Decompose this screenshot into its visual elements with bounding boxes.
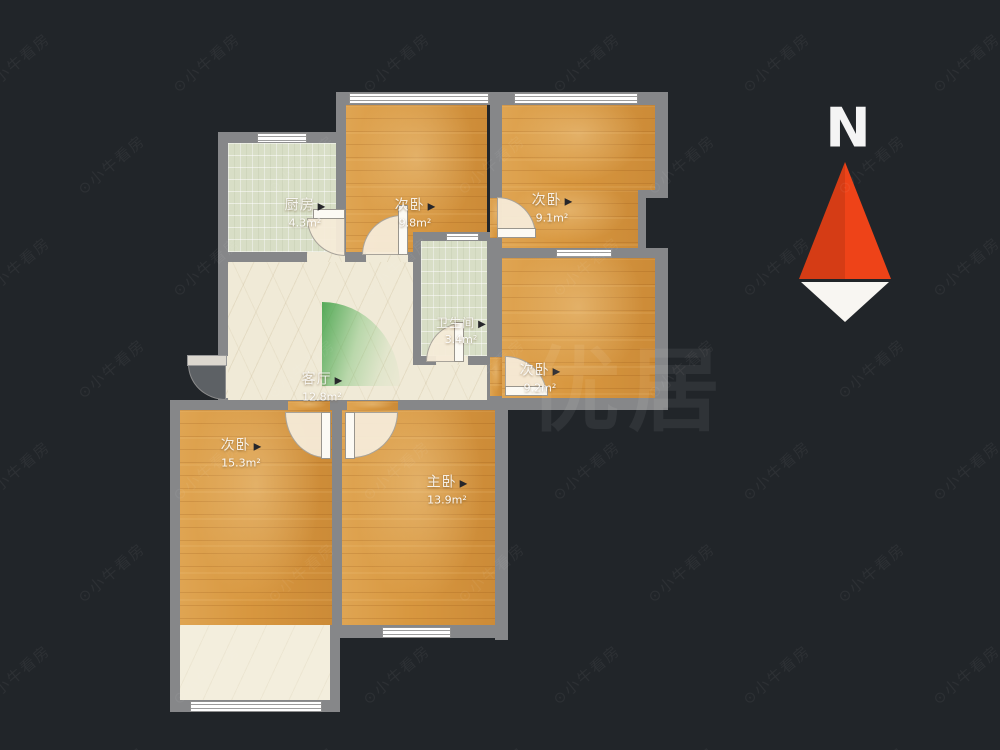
label-arrow-icon: ▶ <box>254 442 262 453</box>
watermark-tile: ⊙小牛看房 <box>548 28 625 97</box>
label-arrow-icon: ▶ <box>335 376 343 387</box>
watermark-tile: ⊙小牛看房 <box>453 742 530 750</box>
window <box>382 627 451 638</box>
watermark-tile: ⊙小牛看房 <box>738 640 815 709</box>
wall-notch <box>646 198 668 248</box>
room-label-kitchen: 厨房▶ 4.3m² <box>285 195 326 230</box>
room-label-bedroom-east: 次卧▶ 9.2m² <box>520 360 561 395</box>
room-area: 4.3m² <box>285 217 326 230</box>
wall <box>495 400 508 640</box>
watermark-tile: ⊙小牛看房 <box>643 742 720 750</box>
watermark-tile: ⊙小牛看房 <box>358 28 435 97</box>
entrance-door-arc <box>188 364 226 400</box>
wall <box>218 132 228 262</box>
watermark-tile: ⊙小牛看房 <box>833 334 910 403</box>
watermark-tile: ⊙小牛看房 <box>73 334 150 403</box>
compass-arrow-icon <box>780 150 920 340</box>
room-area: 9.1m² <box>532 212 573 225</box>
room-label-master-bedroom: 主卧▶ 13.9m² <box>427 472 468 507</box>
wall <box>638 198 646 248</box>
door-opening <box>490 357 502 396</box>
label-arrow-icon: ▶ <box>478 319 486 330</box>
watermark-tile: ⊙小牛看房 <box>833 538 910 607</box>
wall <box>655 92 668 198</box>
watermark-tile: ⊙小牛看房 <box>73 538 150 607</box>
watermark-tile: ⊙小牛看房 <box>0 436 55 505</box>
label-arrow-icon: ▶ <box>553 367 561 378</box>
door-opening <box>347 401 398 410</box>
wall <box>487 398 668 410</box>
wall <box>413 232 421 365</box>
window <box>514 93 638 104</box>
balcony-floor <box>180 625 330 700</box>
wall <box>330 625 340 712</box>
watermark-tile: ⊙小牛看房 <box>73 130 150 199</box>
window <box>190 701 322 712</box>
room-label-bedroom-west: 次卧▶ 15.3m² <box>221 435 262 470</box>
room-area: 9.2m² <box>520 382 561 395</box>
watermark-tile: ⊙小牛看房 <box>168 28 245 97</box>
watermark-tile: ⊙小牛看房 <box>0 640 55 709</box>
watermark-tile: ⊙小牛看房 <box>738 436 815 505</box>
watermark-tile: ⊙小牛看房 <box>358 640 435 709</box>
room-label-bedroom-north: 次卧▶ 9.8m² <box>395 195 436 230</box>
wall <box>332 400 342 630</box>
watermark-tile: ⊙小牛看房 <box>928 436 1000 505</box>
watermark-tile: ⊙小牛看房 <box>738 28 815 97</box>
label-arrow-icon: ▶ <box>460 479 468 490</box>
watermark-tile: ⊙小牛看房 <box>928 232 1000 301</box>
label-arrow-icon: ▶ <box>428 202 436 213</box>
wall <box>655 248 668 410</box>
window <box>257 133 307 143</box>
room-area: 12.8m² <box>302 391 343 404</box>
bedroom-northeast-floor <box>502 105 655 190</box>
window <box>446 233 479 241</box>
room-area: 9.8m² <box>395 217 436 230</box>
room-label-bedroom-northeast: 次卧▶ 9.1m² <box>532 190 573 225</box>
bedroom-northeast-door-leaf <box>497 228 536 238</box>
master-bedroom-door-leaf <box>345 412 355 459</box>
bedroom-north-floor <box>346 105 487 252</box>
floorplan-screen: 厨房▶ 4.3m² 次卧▶ 9.8m² 次卧▶ 9.1m² 卫生间▶ 3.4m²… <box>0 0 1000 750</box>
watermark-tile: ⊙小牛看房 <box>263 742 340 750</box>
room-area: 13.9m² <box>427 494 468 507</box>
room-area: 3.4m² <box>436 333 486 346</box>
entrance-door-leaf <box>187 355 227 366</box>
watermark-tile: ⊙小牛看房 <box>73 742 150 750</box>
wall <box>638 190 668 198</box>
watermark-tile: ⊙小牛看房 <box>548 640 625 709</box>
bedroom-west-door-leaf <box>321 412 331 459</box>
window <box>349 93 489 104</box>
watermark-tile: ⊙小牛看房 <box>928 640 1000 709</box>
watermark-tile: ⊙小牛看房 <box>643 538 720 607</box>
watermark-tile: ⊙小牛看房 <box>548 436 625 505</box>
label-arrow-icon: ▶ <box>565 197 573 208</box>
wall <box>170 400 180 712</box>
label-arrow-icon: ▶ <box>318 202 326 213</box>
watermark-tile: ⊙小牛看房 <box>833 742 910 750</box>
room-label-living-room: 客厅▶ 12.8m² <box>302 369 343 404</box>
watermark-tile: ⊙小牛看房 <box>0 232 55 301</box>
watermark-tile: ⊙小牛看房 <box>0 28 55 97</box>
room-area: 15.3m² <box>221 457 262 470</box>
window <box>556 249 612 258</box>
watermark-tile: ⊙小牛看房 <box>928 28 1000 97</box>
room-label-bathroom: 卫生间▶ 3.4m² <box>436 312 486 346</box>
